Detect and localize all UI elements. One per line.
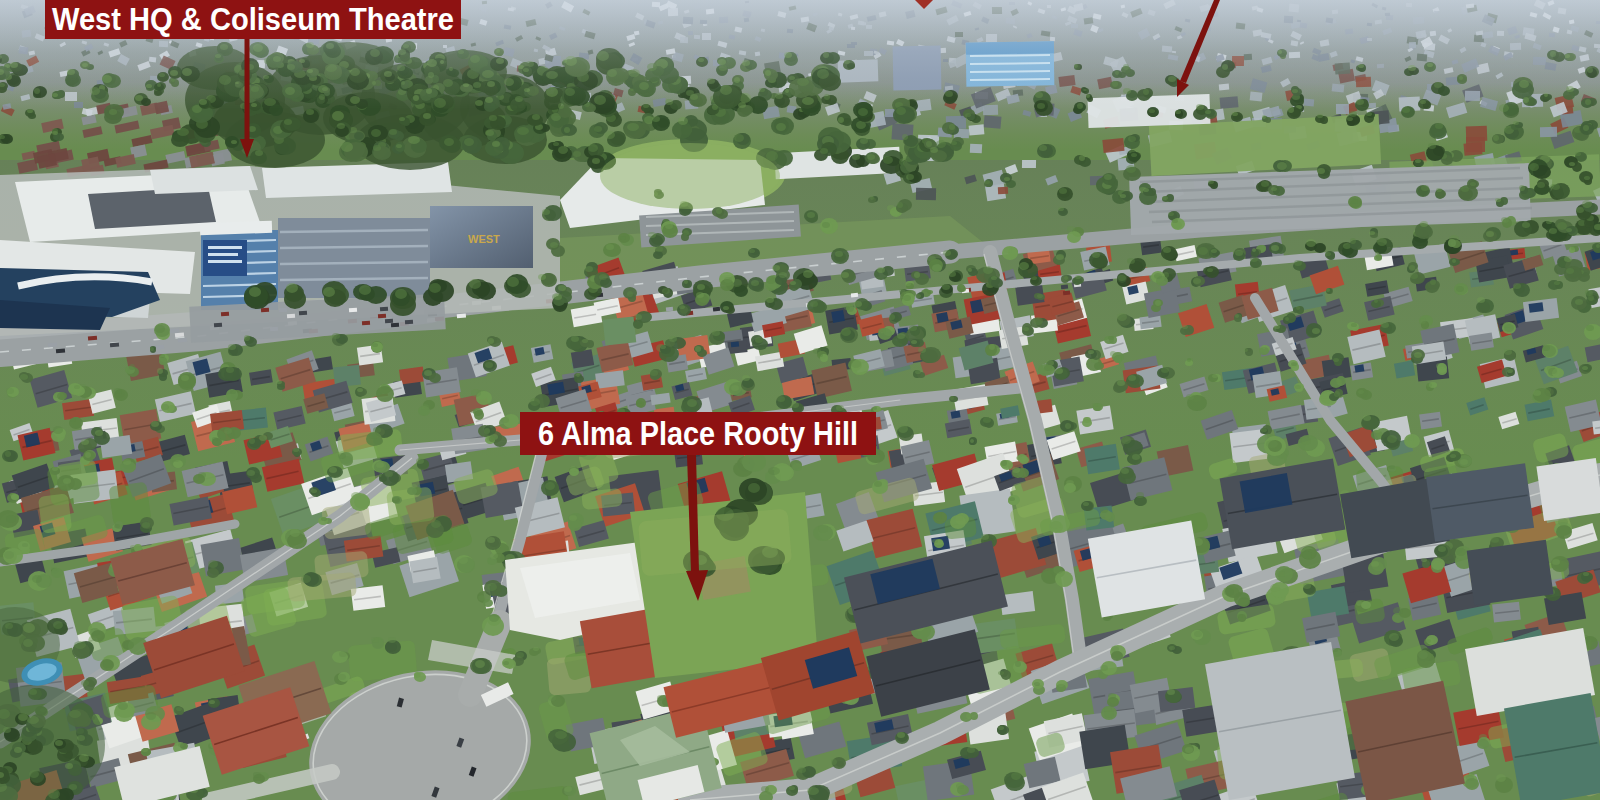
svg-text:6 Alma Place Rooty Hill: 6 Alma Place Rooty Hill [538,415,858,452]
svg-text:West HQ & Coliseum Theatre: West HQ & Coliseum Theatre [52,2,454,37]
